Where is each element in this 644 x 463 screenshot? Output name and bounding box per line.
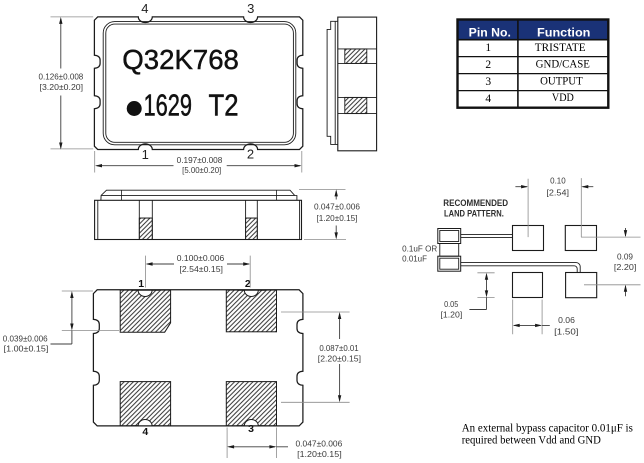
- svg-text:0.047±0.006: 0.047±0.006: [296, 438, 343, 448]
- svg-text:required between Vdd and GND: required between Vdd and GND: [462, 435, 601, 447]
- svg-text:Pin No.: Pin No.: [469, 27, 511, 39]
- svg-text:[3.20±0.20]: [3.20±0.20]: [40, 82, 84, 92]
- svg-text:GND/CASE: GND/CASE: [536, 59, 590, 71]
- svg-text:Q32K768: Q32K768: [122, 44, 239, 75]
- svg-text:[1.20]: [1.20]: [441, 309, 463, 319]
- svg-text:[1.00±0.15]: [1.00±0.15]: [4, 344, 49, 354]
- svg-text:0.01uF: 0.01uF: [402, 255, 427, 264]
- svg-text:0.10: 0.10: [550, 176, 566, 186]
- svg-text:3: 3: [248, 423, 254, 435]
- svg-text:0.06: 0.06: [558, 315, 575, 325]
- svg-text:0.039±0.006: 0.039±0.006: [3, 334, 48, 344]
- svg-text:0.047±0.006: 0.047±0.006: [314, 202, 360, 212]
- svg-text:1: 1: [138, 278, 144, 290]
- svg-text:0.05: 0.05: [444, 299, 458, 309]
- svg-text:T2: T2: [209, 88, 239, 122]
- svg-text:Function: Function: [537, 27, 590, 39]
- svg-text:0.126±0.008: 0.126±0.008: [39, 71, 84, 81]
- svg-text:[1.50]: [1.50]: [554, 327, 578, 337]
- svg-text:0.09: 0.09: [617, 251, 633, 261]
- svg-text:OUTPUT: OUTPUT: [540, 75, 583, 87]
- svg-text:[2.20]: [2.20]: [614, 262, 637, 272]
- svg-text:[2.54]: [2.54]: [546, 187, 569, 197]
- svg-text:4: 4: [485, 93, 491, 105]
- svg-text:4: 4: [141, 1, 148, 16]
- svg-text:[1.20±0.15]: [1.20±0.15]: [317, 213, 358, 223]
- svg-text:3: 3: [485, 76, 491, 88]
- svg-text:LAND PATTERN.: LAND PATTERN.: [444, 209, 504, 219]
- svg-text:RECOMMENDED: RECOMMENDED: [443, 198, 508, 208]
- svg-text:2: 2: [247, 147, 254, 162]
- svg-text:[1.20±0.15]: [1.20±0.15]: [297, 449, 342, 459]
- svg-text:3: 3: [247, 1, 254, 16]
- svg-text:[2.54±0.15]: [2.54±0.15]: [179, 264, 223, 274]
- svg-text:[5.00±0.20]: [5.00±0.20]: [182, 165, 221, 175]
- svg-text:2: 2: [485, 59, 491, 71]
- svg-text:1: 1: [485, 42, 491, 54]
- svg-text:0.197±0.008: 0.197±0.008: [177, 155, 223, 165]
- svg-text:VDD: VDD: [552, 92, 574, 104]
- svg-text:1: 1: [142, 147, 149, 162]
- svg-text:[2.20±0.15]: [2.20±0.15]: [318, 354, 361, 364]
- svg-text:0.100±0.006: 0.100±0.006: [177, 253, 225, 263]
- svg-text:TRISTATE: TRISTATE: [535, 42, 586, 54]
- svg-text:An external bypass capacitor 0: An external bypass capacitor 0.01μF is: [462, 423, 634, 435]
- svg-text:4: 4: [142, 426, 148, 438]
- svg-text:1629: 1629: [144, 88, 193, 122]
- svg-text:0.087±0.01: 0.087±0.01: [319, 343, 359, 353]
- svg-text:0.1uF OR: 0.1uF OR: [402, 244, 437, 253]
